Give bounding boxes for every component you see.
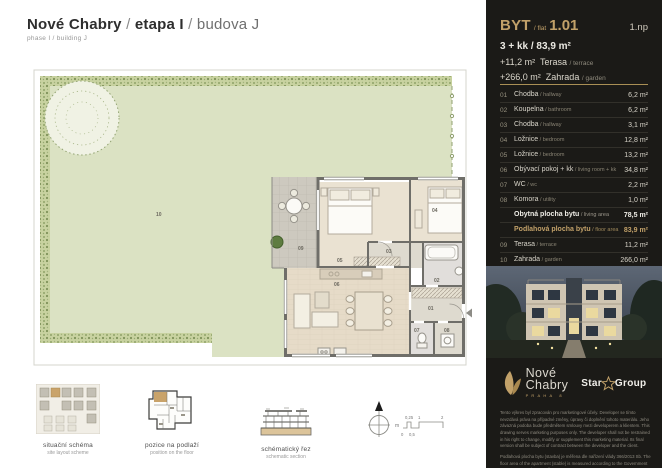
nove-chabry-logo: Nové Chabry PRAHA 8 xyxy=(502,368,569,397)
room-number: 02 xyxy=(500,107,514,114)
star-group-logo: Star Group xyxy=(581,376,646,391)
diagram-subtitle: site layout scheme xyxy=(36,450,100,456)
info-panel: BYT / flat 1.01 1.np 3 + kk / 83,9 m² +1… xyxy=(486,0,662,468)
flat-header: BYT / flat 1.01 1.np 3 + kk / 83,9 m² +1… xyxy=(500,17,648,82)
room-number: 01 xyxy=(500,92,514,99)
floor-number: 1.np xyxy=(630,22,649,33)
table-row: 05Ložnice / bedroom13,2 m² xyxy=(500,148,648,163)
title-brand: Nové Chabry xyxy=(27,16,122,33)
tree-icon xyxy=(45,81,119,155)
room-area: 6,2 m² xyxy=(628,107,648,114)
room-number: 03 xyxy=(500,122,514,129)
sheet-header: Nové Chabry / etapa I / budova J phase I… xyxy=(27,16,259,42)
leaf-icon xyxy=(502,370,522,396)
floorplan-sheet: Nové Chabry / etapa I / budova J phase I… xyxy=(0,0,662,468)
room-number: 08 xyxy=(500,197,514,204)
table-row: 07WC / wc2,2 m² xyxy=(500,178,648,193)
room-area: 12,8 m² xyxy=(624,137,648,144)
room-area: 2,2 m² xyxy=(628,182,648,189)
page-title: Nové Chabry / etapa I / budova J xyxy=(27,16,259,33)
room-name: Podlahová plocha bytu / floor area xyxy=(514,226,624,234)
room-label-02: 02 xyxy=(434,278,440,284)
room-number: 07 xyxy=(500,182,514,189)
room-area: 3,1 m² xyxy=(628,122,648,129)
title-phase: etapa I xyxy=(135,16,184,33)
page-subtitle: phase I / building J xyxy=(27,35,259,42)
room-number: 10 xyxy=(500,257,514,264)
room-name: Koupelna / bathroom xyxy=(514,106,628,114)
site-scheme-thumbnail xyxy=(36,384,100,434)
wardrobe-hall-01 xyxy=(412,288,462,298)
diagram-title: schématický řez xyxy=(256,446,316,453)
toilet-icon xyxy=(417,333,427,348)
hedge-bottom xyxy=(40,333,212,343)
floor-plan: 10 09 xyxy=(28,60,472,374)
room-label-01: 01 xyxy=(428,306,434,312)
room-name: Ložnice / bedroom xyxy=(514,136,624,144)
room-label-04: 04 xyxy=(432,208,438,214)
table-row: 01Chodba / hallway6,2 m² xyxy=(500,88,648,103)
room-number: 04 xyxy=(500,137,514,144)
table-row: 08Komora / utility1,0 m² xyxy=(500,193,648,208)
room-name: WC / wc xyxy=(514,181,628,189)
flat-label-en: / flat xyxy=(534,25,546,32)
room-area: 83,9 m² xyxy=(624,227,648,234)
disclaimer: Tento výkres byl zpracován pro marketing… xyxy=(500,410,652,468)
kitchen-counter xyxy=(320,269,382,279)
room-name: Zahrada / garden xyxy=(514,256,620,264)
diagram-subtitle: position on the floor xyxy=(141,450,203,456)
garden-line: +266,0 m² Zahrada / garden xyxy=(500,72,648,82)
room-label-garden: 10 xyxy=(156,212,162,218)
flat-layout: 3 + kk / 83,9 m² xyxy=(500,41,648,52)
diagram-title: pozice na podlaží xyxy=(141,442,203,449)
room-name: Chodba / hallway xyxy=(514,121,628,129)
table-row: 10Zahrada / garden266,0 m² xyxy=(500,253,648,266)
table-row: 02Koupelna / bathroom6,2 m² xyxy=(500,103,648,118)
room-number: 06 xyxy=(500,167,514,174)
diagram-subtitle: schematic section xyxy=(256,454,316,460)
scale-bar: m 0,25 1 2 0 0,5 xyxy=(394,412,446,438)
terrace-line: +11,2 m² Terasa / terrace xyxy=(500,57,648,67)
building-photo xyxy=(486,266,662,358)
room-table: 01Chodba / hallway6,2 m²02Koupelna / bat… xyxy=(500,88,648,266)
room-label-03: 03 xyxy=(386,249,392,255)
floor-position-thumbnail xyxy=(141,385,203,434)
divider xyxy=(500,84,648,85)
room-area: 1,0 m² xyxy=(628,197,648,204)
room-area: 13,2 m² xyxy=(624,152,648,159)
disclaimer-1: Tento výkres byl zpracován pro marketing… xyxy=(500,410,652,450)
bed-bedroom-05 xyxy=(321,188,379,234)
room-label-06: 06 xyxy=(334,282,340,288)
title-building: budova J xyxy=(197,16,259,33)
table-row: 03Chodba / hallway3,1 m² xyxy=(500,118,648,133)
table-row: 06Obývací pokoj + kk / living room + kk3… xyxy=(500,163,648,178)
washing-machine-icon xyxy=(441,334,454,347)
highlighted-unit xyxy=(154,392,167,402)
room-area: 78,5 m² xyxy=(624,212,648,219)
svg-text:2: 2 xyxy=(441,415,444,420)
scale-unit: m xyxy=(395,423,399,429)
svg-text:0: 0 xyxy=(401,432,404,437)
room-number: 09 xyxy=(500,242,514,249)
room-name: Terasa / terrace xyxy=(514,241,625,249)
svg-text:1: 1 xyxy=(418,415,421,420)
star-icon xyxy=(601,376,616,391)
table-row: 09Terasa / terrace11,2 m² xyxy=(500,238,648,253)
room-area: 6,2 m² xyxy=(628,92,648,99)
dining-table xyxy=(346,292,392,330)
room-name: Chodba / hallway xyxy=(514,91,628,99)
table-row: Obytná plocha bytu / living area78,5 m² xyxy=(500,208,648,223)
logo-band: Nové Chabry PRAHA 8 Star Group xyxy=(486,358,662,408)
disclaimer-2: Podlahová plocha bytu (stavba) je měřena… xyxy=(500,454,652,468)
wardrobe-hall-03 xyxy=(354,257,400,266)
room-area: 34,8 m² xyxy=(624,167,648,174)
room-name: Komora / utility xyxy=(514,196,628,204)
bush-icon xyxy=(271,236,283,248)
flat-number: 1.01 xyxy=(549,17,578,34)
diagram-title: situační schéma xyxy=(36,442,100,449)
room-number: 05 xyxy=(500,152,514,159)
room-label-terrace: 09 xyxy=(298,246,304,252)
room-area: 266,0 m² xyxy=(620,257,648,264)
room-name: Obývací pokoj + kk / living room + kk xyxy=(514,166,624,174)
table-row: 04Ložnice / bedroom12,8 m² xyxy=(500,133,648,148)
room-label-08: 08 xyxy=(444,328,450,334)
entrance-arrow-icon xyxy=(466,307,472,319)
room-label-07: 07 xyxy=(414,328,420,334)
sheet-left: Nové Chabry / etapa I / budova J phase I… xyxy=(0,0,486,468)
highlighted-floor xyxy=(261,428,311,435)
section-diagram: schématický řez schematic section xyxy=(256,406,316,460)
site-scheme-diagram: situační schéma site layout scheme xyxy=(36,384,100,456)
hedge-top xyxy=(40,76,452,86)
room-label-05: 05 xyxy=(337,258,343,264)
room-name: Obytná plocha bytu / living area xyxy=(514,211,624,219)
north-arrow-icon xyxy=(366,400,392,438)
svg-text:0,25: 0,25 xyxy=(405,415,414,420)
svg-text:0,5: 0,5 xyxy=(409,432,415,437)
table-row: Podlahová plocha bytu / floor area83,9 m… xyxy=(500,223,648,238)
room-name: Ložnice / bedroom xyxy=(514,151,624,159)
floor-position-diagram: pozice na podlaží position on the floor xyxy=(141,385,203,456)
section-thumbnail xyxy=(256,406,316,438)
room-area: 11,2 m² xyxy=(625,242,648,249)
flat-type: BYT xyxy=(500,17,531,34)
highlighted-building xyxy=(51,388,60,397)
